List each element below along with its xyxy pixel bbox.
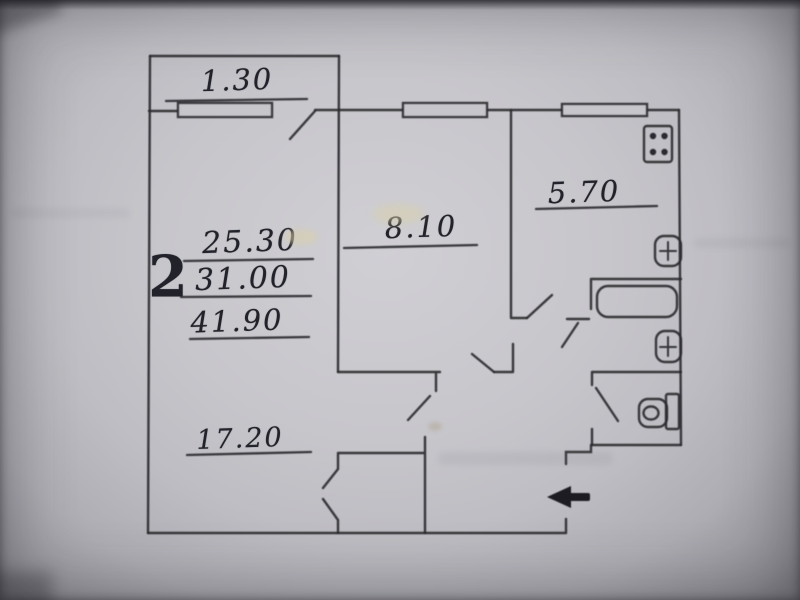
balcony-window-icon xyxy=(178,103,272,117)
balcony-width-label: 1.30 xyxy=(200,62,274,99)
toilet-door-icon xyxy=(596,388,618,421)
bathroom-sink-icon xyxy=(656,331,681,362)
middle-room-door-icon xyxy=(472,354,494,372)
underline-second-room xyxy=(344,245,477,248)
kitchen-area-label: 5.70 xyxy=(547,174,621,211)
floorplan-drawing xyxy=(0,0,800,600)
kitchen-window-icon xyxy=(562,104,647,116)
ink-bleed-through xyxy=(694,238,790,248)
kitchen-left-wall xyxy=(494,110,527,372)
living-room-area-label: 17.20 xyxy=(196,422,284,456)
ink-bleed-through xyxy=(438,452,613,465)
closet-walls xyxy=(323,437,425,533)
living-area-label: 25.30 xyxy=(201,223,298,261)
kitchen-door-icon xyxy=(527,295,552,318)
room-window-icon xyxy=(403,103,487,117)
bottom-wall xyxy=(148,519,566,533)
ink-bleed-through xyxy=(10,208,130,218)
entrance-arrow-icon xyxy=(547,486,590,508)
kitchen-sink-icon xyxy=(655,236,681,266)
floorplan-photo: 1.30 2 25.30 31.00 41.90 8.10 5.70 17.20 xyxy=(0,0,800,600)
bathroom-door-icon xyxy=(562,319,589,347)
middle-room-bottom-wall xyxy=(338,372,440,391)
second-room-area-label: 8.10 xyxy=(384,209,458,246)
rooms-count-label: 2 xyxy=(148,244,188,311)
bathtub-icon xyxy=(597,286,677,317)
photo-corner-shadow xyxy=(0,572,52,600)
underline-balcony xyxy=(166,99,307,101)
windows xyxy=(178,103,647,117)
toilet-icon xyxy=(639,394,679,429)
total-area-label: 41.90 xyxy=(190,302,284,339)
kitchen-bath-divider xyxy=(591,279,681,309)
balcony-door-icon xyxy=(290,111,315,139)
photo-edge-shadow xyxy=(0,0,800,10)
living-room-door-icon xyxy=(408,396,430,420)
stove-icon xyxy=(644,126,672,162)
living-plus-kitchen-area-label: 31.00 xyxy=(194,260,291,298)
room-divider-wall xyxy=(338,56,339,372)
